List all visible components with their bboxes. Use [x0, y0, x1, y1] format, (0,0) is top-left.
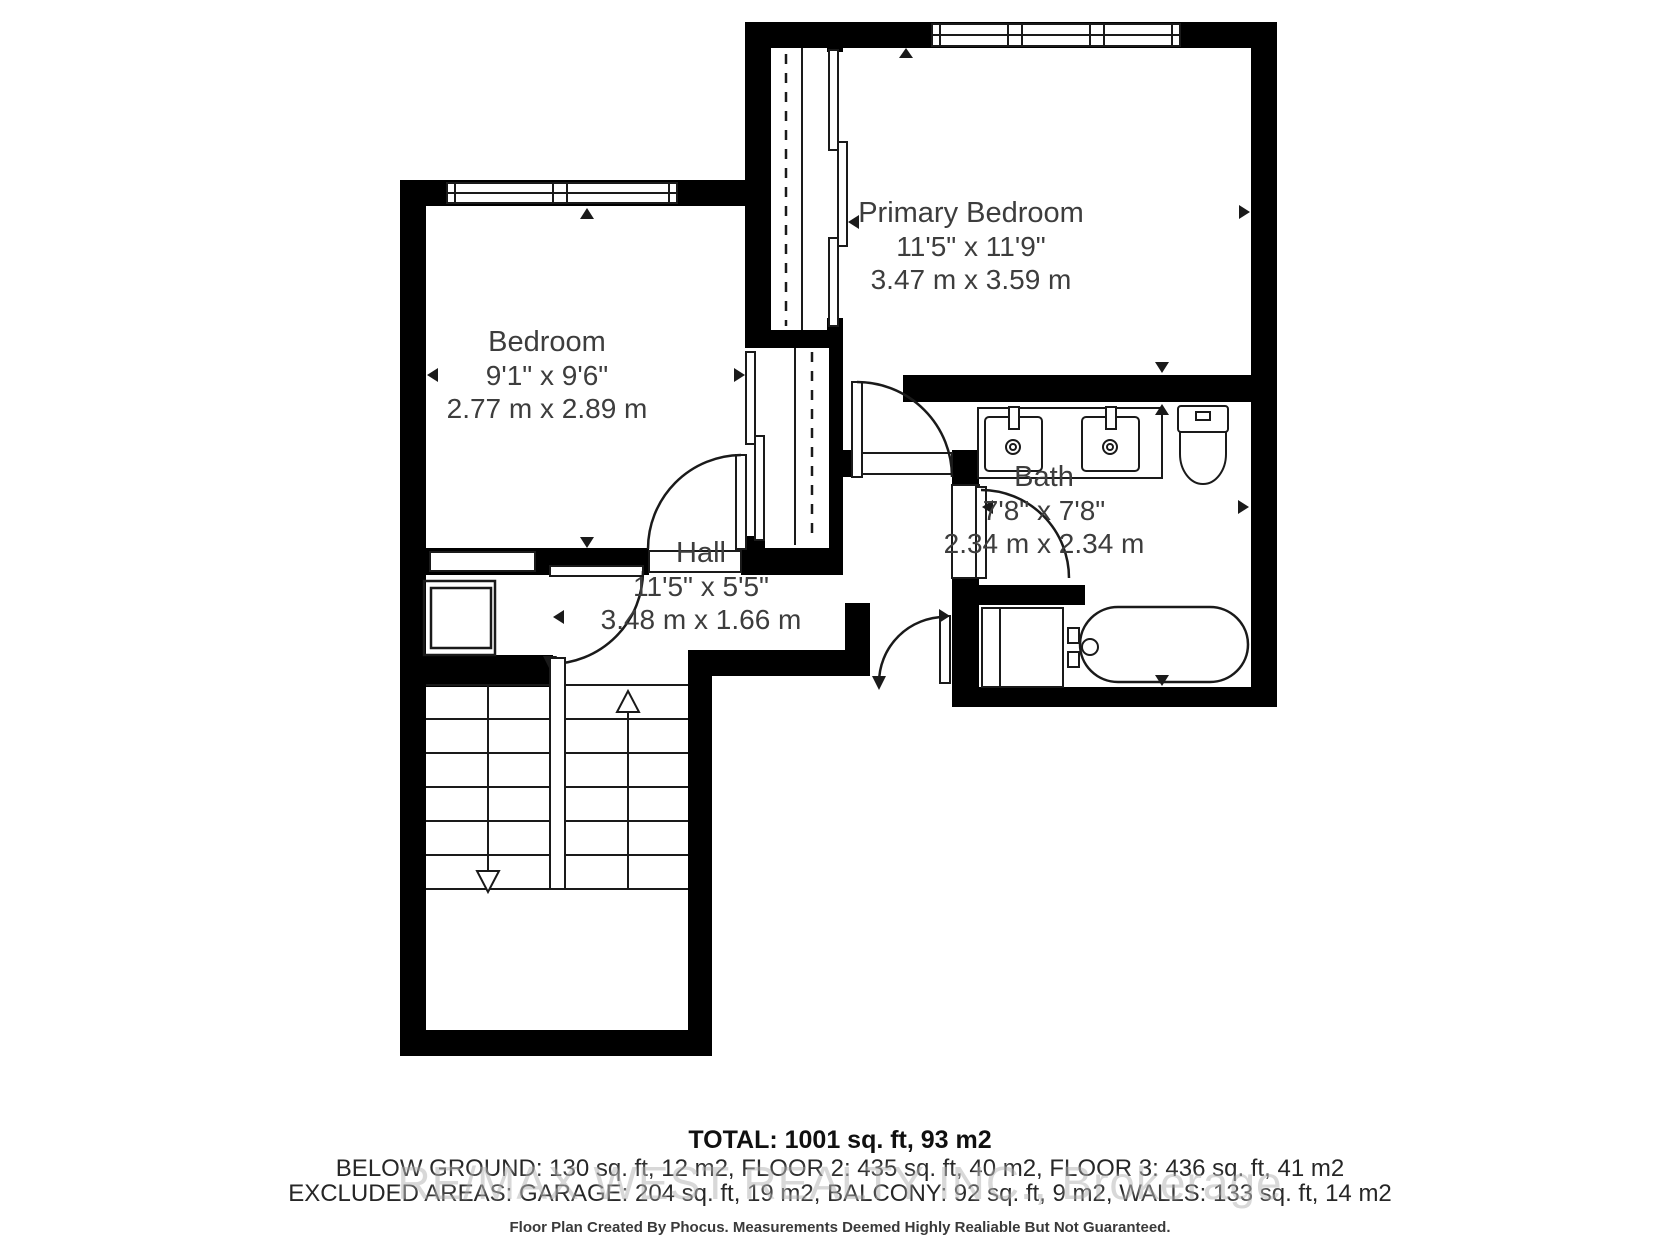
corridor-closet	[982, 608, 1063, 687]
room-dim-ft: 11'5" x 11'9"	[858, 230, 1084, 263]
stairs-up-arrow-icon	[617, 691, 639, 712]
room-name: Bedroom	[447, 325, 648, 359]
floor-plan-page: Primary Bedroom 11'5" x 11'9" 3.47 m x 3…	[0, 0, 1680, 1260]
room-dim-m: 3.47 m x 3.59 m	[858, 263, 1084, 296]
total-area-text: TOTAL: 1001 sq. ft, 93 m2	[0, 1126, 1680, 1155]
sliding-closet-door-icon	[829, 50, 847, 326]
bedroom-closet	[746, 348, 812, 545]
room-name: Bath	[944, 460, 1145, 494]
floor-areas-text: BELOW GROUND: 130 sq. ft, 12 m2, FLOOR 2…	[0, 1155, 1680, 1183]
sliding-closet-door-icon	[746, 352, 764, 540]
room-label-bedroom: Bedroom 9'1" x 9'6" 2.77 m x 2.89 m	[447, 325, 648, 425]
hall-linen-closet	[424, 581, 495, 655]
bedroom-window	[447, 183, 677, 203]
excluded-areas-text: EXCLUDED AREAS: GARAGE: 204 sq. ft, 19 m…	[0, 1180, 1680, 1208]
room-label-bath: Bath 7'8" x 7'8" 2.34 m x 2.34 m	[944, 460, 1145, 560]
disclaimer-text: Floor Plan Created By Phocus. Measuremen…	[0, 1219, 1680, 1236]
primary-bedroom-window	[932, 24, 1180, 46]
room-name: Primary Bedroom	[858, 196, 1084, 230]
corridor-door	[872, 616, 950, 690]
room-dim-ft: 9'1" x 9'6"	[447, 359, 648, 392]
bedroom-door	[648, 455, 746, 549]
room-label-primary-bedroom: Primary Bedroom 11'5" x 11'9" 3.47 m x 3…	[858, 196, 1084, 296]
room-dim-m: 2.34 m x 2.34 m	[944, 527, 1145, 560]
stairs	[426, 658, 688, 889]
room-dim-m: 2.77 m x 2.89 m	[447, 392, 648, 425]
bathtub-icon	[1068, 607, 1248, 682]
room-dim-ft: 11'5" x 5'5"	[601, 570, 802, 603]
floor-plan-drawing	[0, 0, 1680, 1260]
room-dim-ft: 7'8" x 7'8"	[944, 494, 1145, 527]
primary-closet	[786, 48, 847, 330]
room-label-hall: Hall 11'5" x 5'5" 3.48 m x 1.66 m	[601, 536, 802, 636]
toilet-icon	[1178, 406, 1228, 484]
room-name: Hall	[601, 536, 802, 570]
room-dim-m: 3.48 m x 1.66 m	[601, 603, 802, 636]
